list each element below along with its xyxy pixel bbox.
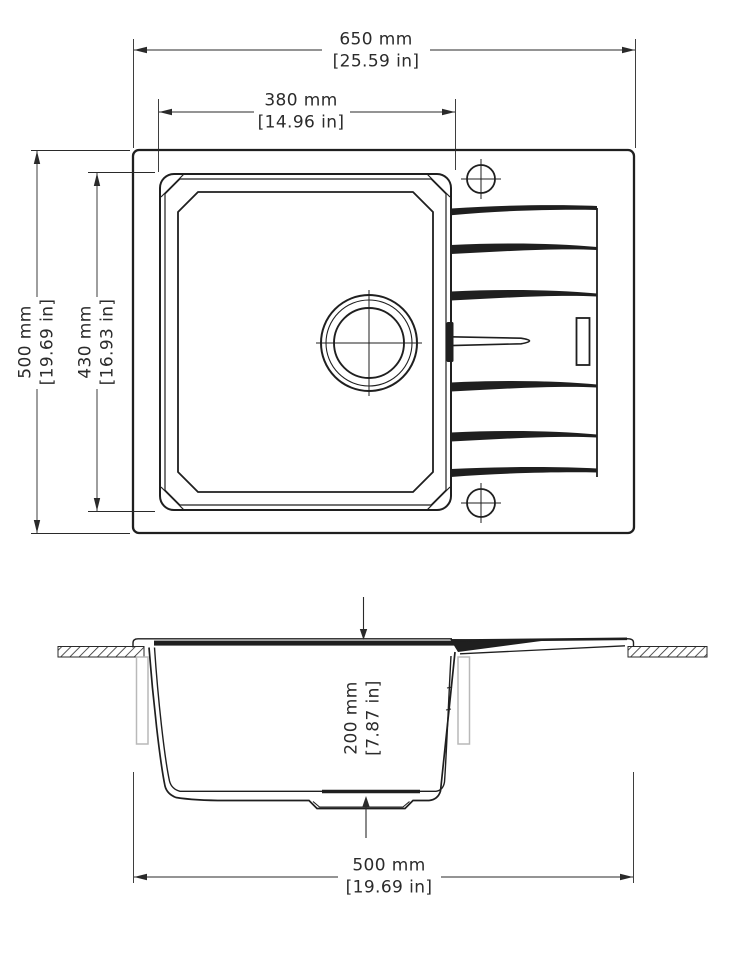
countertop-hatch-left — [58, 647, 144, 658]
dim-value-mm: 500 mm — [16, 305, 38, 378]
cabinet-panel-left — [137, 657, 149, 744]
dim-value-inch: [19.69 in] — [37, 299, 59, 386]
dim-value-mm: 380 mm — [264, 91, 337, 113]
dim-value-inch: [14.96 in] — [258, 112, 345, 134]
dim-label-bowl-height: 200 mm [7.87 in] — [342, 680, 385, 756]
dim-label-overall-width: 650 mm [25.59 in] — [333, 30, 420, 73]
cabinet-panel-right — [458, 657, 470, 744]
drawing-svg — [0, 0, 739, 956]
dim-value-inch: [7.87 in] — [363, 680, 385, 756]
dim-label-bowl-depth: 430 mm [16.93 in] — [76, 299, 119, 386]
drainboard-section-profile — [450, 639, 634, 654]
overflow-junction-bar — [447, 322, 454, 362]
dim-label-bowl-width: 380 mm [14.96 in] — [258, 91, 345, 134]
dim-label-overall-depth: 500 mm [19.69 in] — [16, 299, 59, 386]
countertop-hatch-right — [628, 647, 707, 658]
drainboard-short-rib — [451, 337, 530, 346]
dim-value-inch: [19.69 in] — [346, 877, 433, 899]
dim-value-inch: [16.93 in] — [97, 299, 119, 386]
dim-value-mm: 200 mm — [342, 681, 364, 754]
sink-section-profile — [133, 639, 456, 809]
dim-value-mm: 500 mm — [352, 856, 425, 878]
dim-value-inch: [25.59 in] — [333, 51, 420, 73]
drainboard-slot — [577, 318, 590, 365]
sink-bowl — [160, 174, 451, 510]
dim-value-mm: 650 mm — [339, 30, 412, 52]
sink-technical-drawing: 650 mm [25.59 in] 380 mm [14.96 in] 500 … — [0, 0, 739, 956]
dim-label-base-width: 500 mm [19.69 in] — [346, 856, 433, 899]
dim-value-mm: 430 mm — [76, 305, 98, 378]
